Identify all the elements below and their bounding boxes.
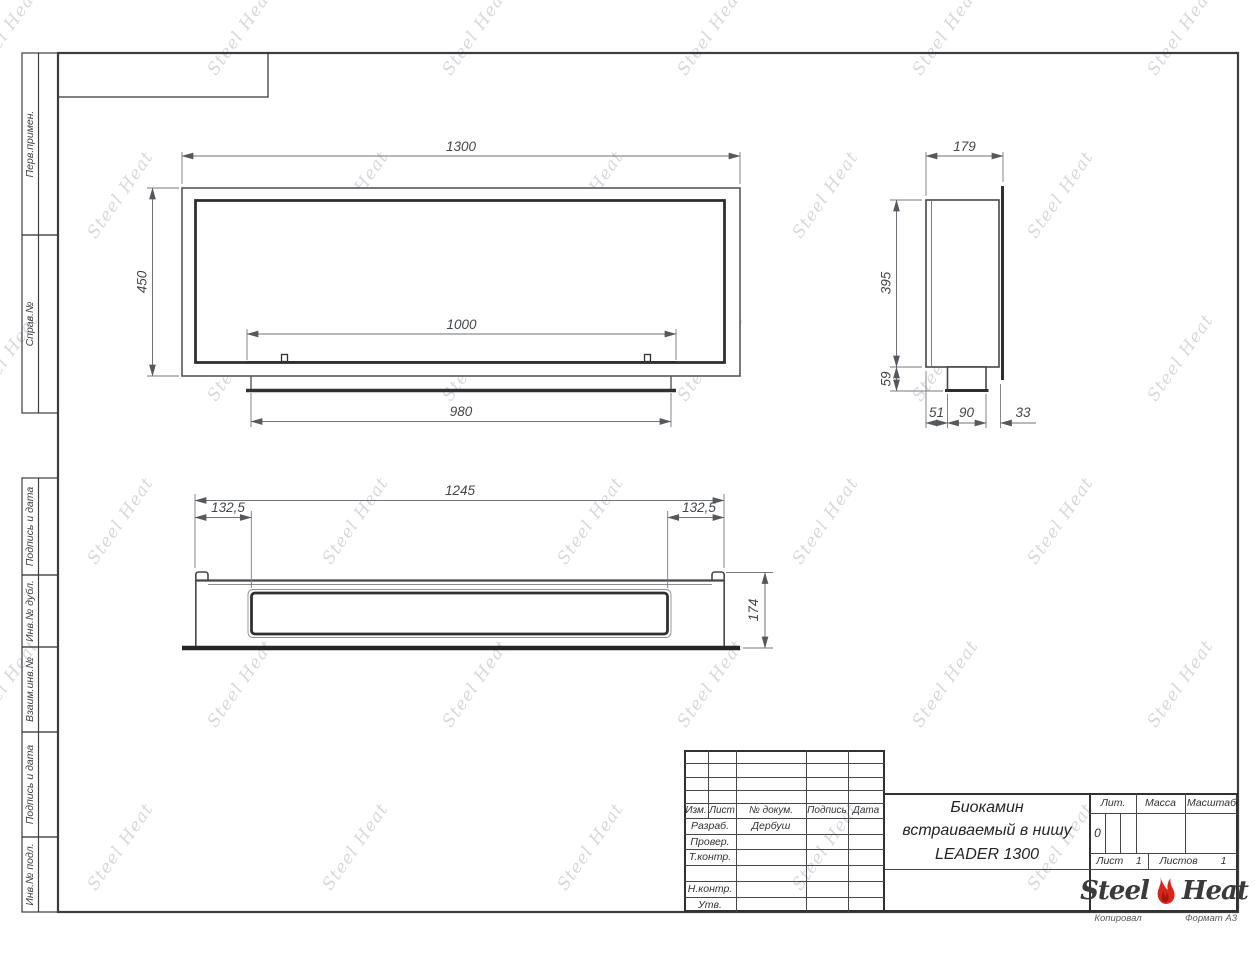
logo-word-heat: Heat (1182, 876, 1248, 906)
margin-label: Инв.№ дубл. (24, 580, 36, 642)
front-clip-right (645, 355, 651, 362)
dim-front-height: 450 (135, 270, 150, 293)
sheets-label: Листов (1159, 855, 1197, 867)
row-label-checker: Провер. (684, 834, 736, 849)
row-label-ncontrol: Н.контр. (684, 881, 736, 897)
bottom-tab-left (196, 572, 208, 646)
sheet-label: Лист (1096, 855, 1123, 867)
row-label-empty (684, 865, 736, 881)
front-clip-left (282, 355, 288, 362)
scale-label: Масштаб (1185, 793, 1238, 813)
margin-label: Подпись и дата (24, 745, 36, 825)
document-title: Биокамин встраиваемый в нишу LEADER 1300 (884, 793, 1090, 869)
lit-label: Лит. (1090, 793, 1136, 813)
front-view: 1300 450 1000 980 (135, 139, 741, 427)
title-line-1: Биокамин (950, 796, 1023, 819)
sheets-value: 1 (1221, 855, 1227, 867)
margin-label: Справ.№ (24, 302, 36, 347)
bottom-burner-slot (252, 593, 668, 634)
dim-side-box: 90 (959, 405, 975, 420)
logo-word-steel: Steel (1080, 876, 1149, 906)
top-left-box (58, 53, 268, 97)
dim-side-height: 395 (879, 271, 894, 294)
col-sign: Подпись (806, 803, 848, 818)
dim-side-front: 51 (929, 405, 944, 420)
title-line-2: встраиваемый в нишу (902, 819, 1071, 842)
col-izm: Изм. (684, 803, 708, 818)
sheets-total-cell: Листов 1 (1148, 853, 1238, 869)
side-body (926, 200, 999, 367)
margin-strip-labels: Перв.примен. Справ.№ Подпись и дата Инв.… (24, 111, 36, 906)
col-doc: № докум. (736, 803, 806, 818)
format-label: Формат А3 (1166, 913, 1255, 924)
side-view: 179 395 59 51 90 33 (879, 139, 1037, 428)
bottom-tab-right (712, 572, 724, 646)
dim-front-opening: 1000 (446, 317, 477, 332)
dim-bottom-offset-right: 132,5 (682, 500, 716, 515)
steelheat-logo: Steel Heat (1090, 869, 1238, 912)
row-label-tcontrol: Т.контр. (684, 849, 736, 865)
margin-label: Инв.№ подл. (24, 843, 36, 905)
margin-label: Перв.примен. (24, 111, 36, 178)
dim-bottom-depth: 174 (746, 599, 761, 622)
lit-value: 0 (1090, 813, 1105, 853)
dim-side-box-height: 59 (879, 371, 894, 387)
col-date: Дата (848, 803, 884, 818)
row-label-approved: Утв. (684, 897, 736, 912)
row-label-developer: Разраб. (684, 818, 736, 834)
front-glass-frame (196, 201, 725, 363)
title-line-3: LEADER 1300 (935, 843, 1039, 866)
sheet-number-cell: Лист 1 (1090, 853, 1148, 869)
dim-front-width: 1300 (446, 139, 477, 154)
margin-label: Взаим.инв.№ (24, 657, 36, 722)
dim-front-tray: 980 (450, 404, 473, 419)
margin-label: Подпись и дата (24, 487, 36, 567)
col-list: Лист (708, 803, 736, 818)
dim-side-depth: 179 (953, 139, 976, 154)
mass-label: Масса (1136, 793, 1185, 813)
copied-label: Копировал (1073, 913, 1163, 924)
dim-side-back: 33 (1015, 405, 1031, 420)
flame-icon (1153, 875, 1178, 907)
title-block: Изм. Лист № докум. Подпись Дата Разраб. … (684, 750, 1238, 912)
dim-bottom-width: 1245 (445, 483, 476, 498)
drawing-sheet: Steel HeatSteel HeatSteel HeatSteel Heat… (0, 0, 1255, 970)
side-burner-box (948, 367, 987, 390)
dim-bottom-offset-left: 132,5 (211, 500, 245, 515)
bottom-view: 1245 132,5 132,5 174 (182, 483, 773, 648)
sheet-value: 1 (1136, 855, 1142, 867)
row-value-developer: Дербуш (736, 818, 806, 834)
